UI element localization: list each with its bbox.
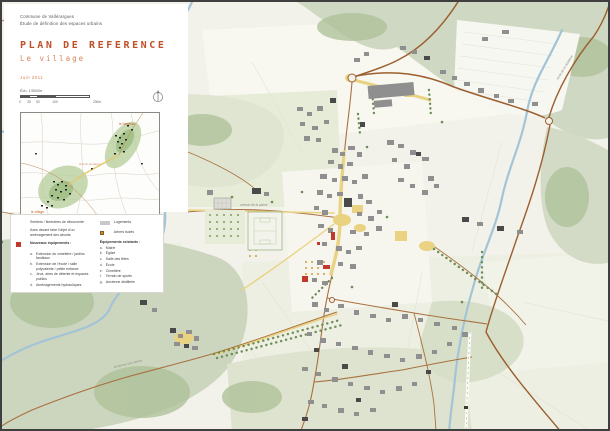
inset-label-hameau: le hameau xyxy=(119,122,135,126)
scale-tick-100: 100 xyxy=(52,100,57,104)
scale-bar-graphic: 0 25 50 100 200m xyxy=(20,95,90,98)
legend-existing-f: f.Terrain de sports xyxy=(100,274,158,279)
map-cemetery xyxy=(214,198,231,209)
title-panel: Commune de Vallérargues Étude de définit… xyxy=(4,4,188,212)
tree-chip-icon xyxy=(100,231,114,237)
legend-existing-a: a.Mairie xyxy=(100,246,158,251)
legend-existing-d: d.École xyxy=(100,263,158,268)
scale-tick-200: 200m xyxy=(93,100,101,104)
legend-new-item-b: b. Extension de l'école / salle polyvale… xyxy=(30,262,95,271)
legend-new-item-c: c. Jeux, aires de détente et espaces pub… xyxy=(30,272,95,281)
legend-existing-b: b.Église xyxy=(100,251,158,256)
study-name: Étude de définition des espaces urbains xyxy=(20,21,182,28)
commune-name: Commune de Vallérargues xyxy=(20,14,182,21)
page-title: PLAN DE REFERENCE xyxy=(20,40,182,51)
north-arrow-icon xyxy=(152,89,164,103)
legend-existing-title: Équipements existants : xyxy=(100,240,158,245)
scale-tick-25: 25 xyxy=(27,100,31,104)
map-sports-field xyxy=(248,212,282,250)
legend-item-housing: Logements xyxy=(100,220,158,226)
page-subtitle: Le village xyxy=(20,54,182,63)
legend-existing-e: e.Cimetière xyxy=(100,269,158,274)
housing-chip-icon xyxy=(100,221,114,226)
scale-tick-50: 50 xyxy=(36,100,40,104)
legend-item-new-equip: Nouveaux équipements : xyxy=(16,241,95,249)
road-label-2: chemin de la plaine xyxy=(240,203,268,207)
legend-panel: Sentiers / itinéraires de découverte Axe… xyxy=(10,214,164,293)
scale-tick-0: 0 xyxy=(19,100,21,104)
legend-existing-c: c.Salle des fêtes xyxy=(100,257,158,262)
legend-new-item-a: a. Extension du cimetière / jardins fami… xyxy=(30,252,95,261)
legend-item-paths: Sentiers / itinéraires de découverte xyxy=(16,220,95,225)
legend-item-axes: Axes devant faire l'objet d'un aménageme… xyxy=(16,228,95,237)
plan-sheet: route de la distillerie chemin de la pla… xyxy=(0,0,610,431)
inset-label-liaison: chemin de liaison xyxy=(79,162,101,166)
scale-bar: Éch. 1/5000e 0 25 50 100 200m xyxy=(20,89,182,105)
legend-left-column: Sentiers / itinéraires de découverte Axe… xyxy=(16,220,95,288)
legend-item-trees: Arbres isolés xyxy=(100,230,158,237)
red-square-icon xyxy=(16,242,30,249)
inset-map: le hameau le village chemin de liaison xyxy=(20,112,160,222)
legend-right-column: Logements Arbres isolés Équipements exis… xyxy=(100,220,158,288)
plan-date: Juin 2011 xyxy=(20,75,182,80)
legend-existing-g: g.Ancienne distillerie xyxy=(100,280,158,285)
legend-new-item-d: d. Aménagements hydrauliques xyxy=(30,283,95,288)
